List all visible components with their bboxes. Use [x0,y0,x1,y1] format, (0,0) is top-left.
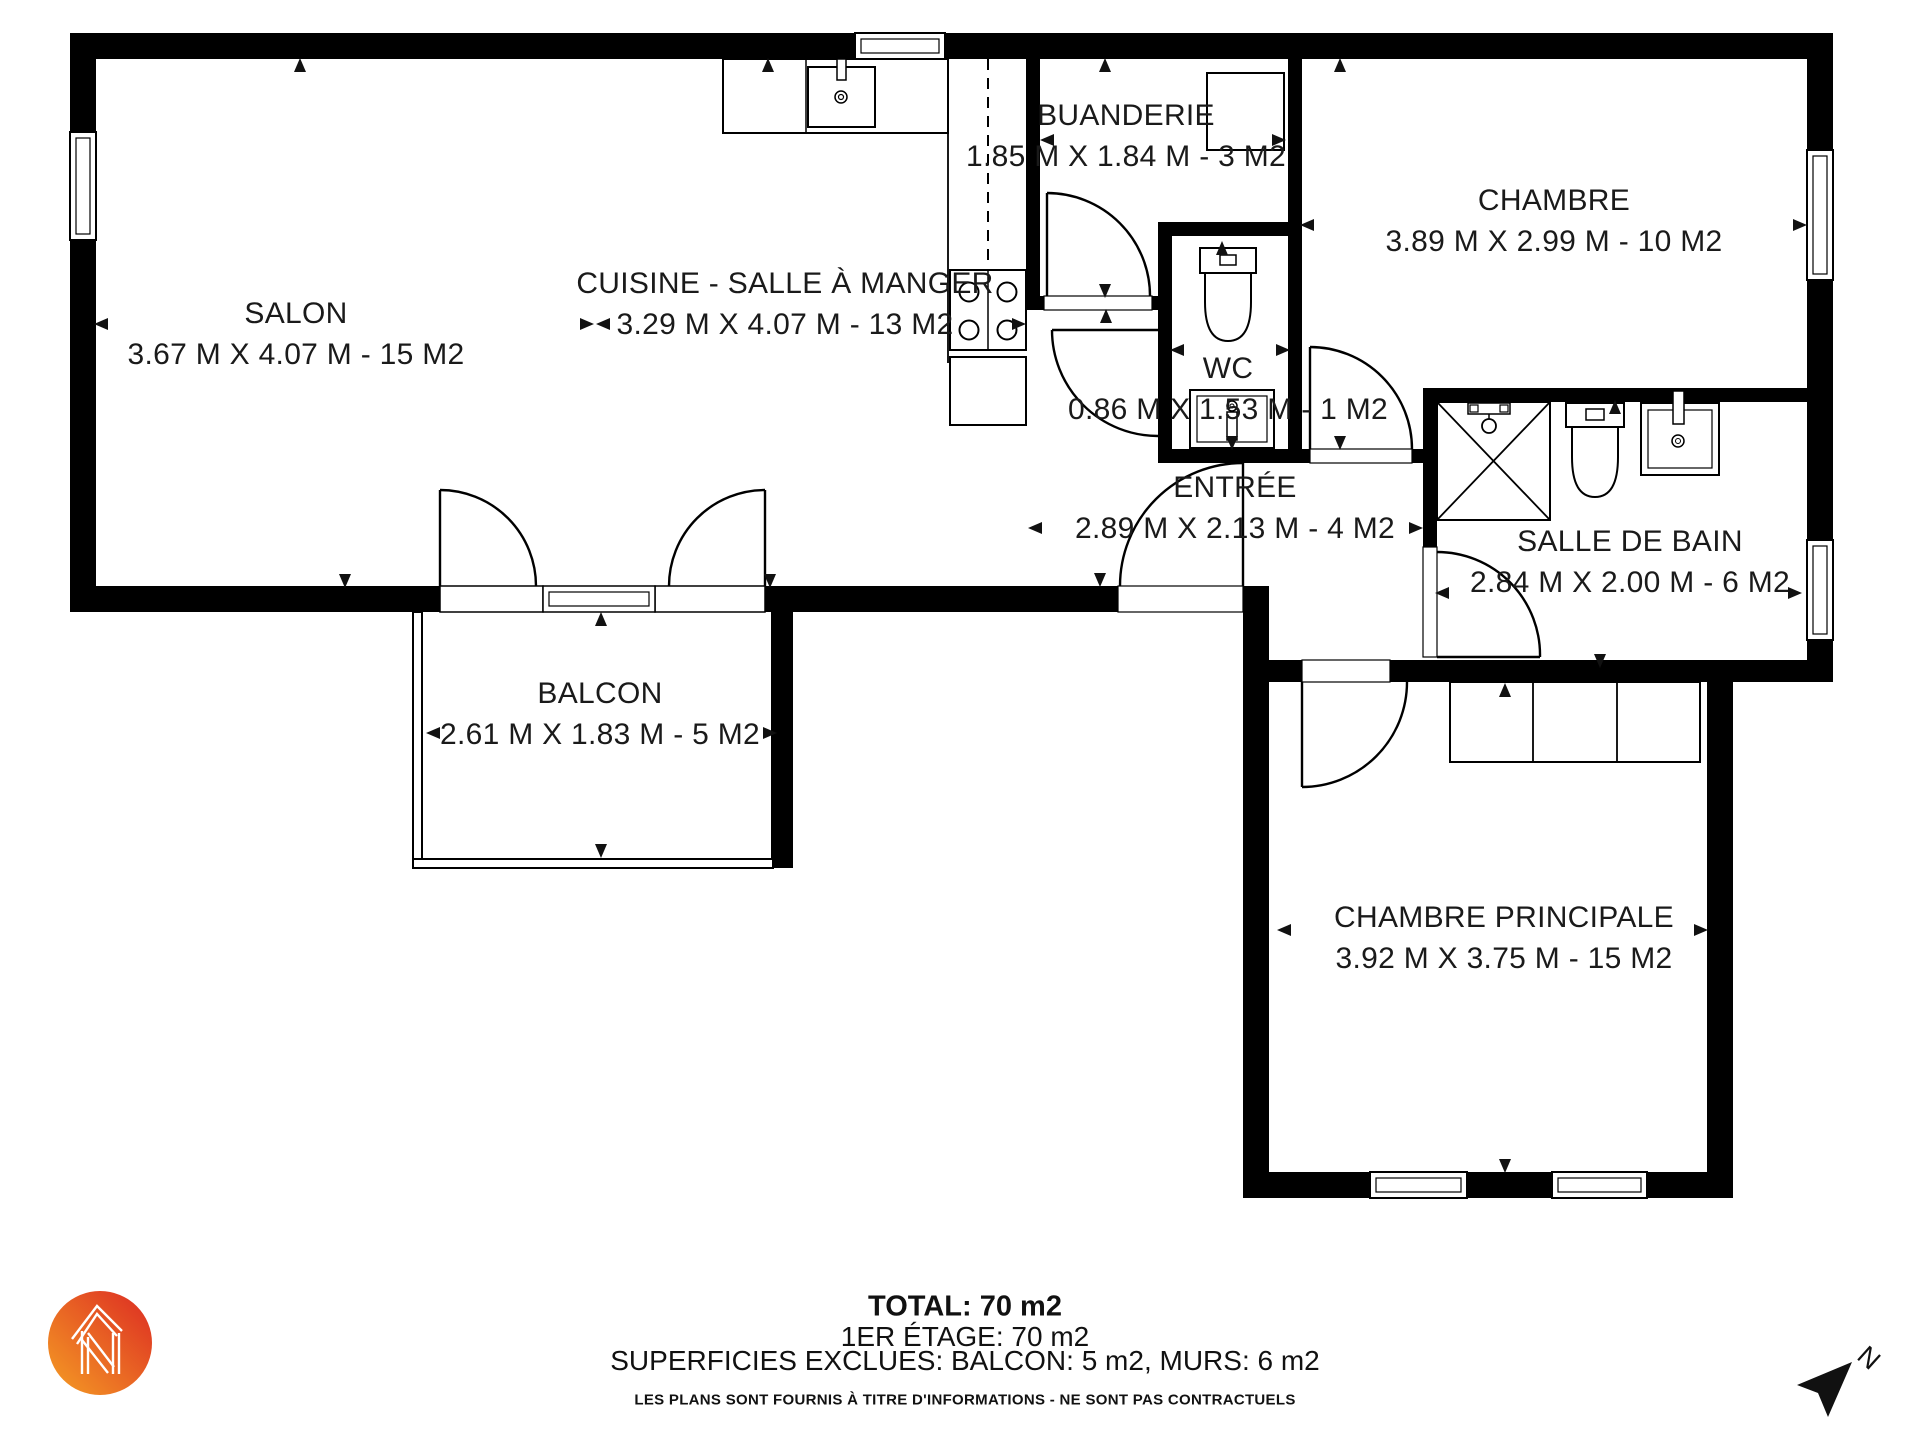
footer-total: TOTAL: 70 m2 [868,1291,1062,1324]
arrow-up-icon [294,58,306,72]
opening-front-door [1118,586,1243,612]
room-name: SALLE DE BAIN [1470,521,1790,562]
balcony-door-sill-right [655,586,765,612]
arrow-left-icon [426,727,440,739]
window-cuisine [855,33,945,59]
arrow-up-icon [1099,58,1111,72]
sink-icon-sdb [1641,391,1719,475]
arrow-down-icon [339,574,351,588]
room-label-chambre: CHAMBRE 3.89 M X 2.99 M - 10 M2 [1385,180,1722,262]
room-label-salle-de-bain: SALLE DE BAIN 2.84 M X 2.00 M - 6 M2 [1470,521,1790,603]
room-dims: 3.92 M X 3.75 M - 15 M2 [1334,938,1674,979]
window-chambre [1807,150,1833,280]
closet-icon [1450,682,1700,762]
wall-chambre-principale-right [1707,660,1733,1198]
room-label-chambre-principale: CHAMBRE PRINCIPALE 3.92 M X 3.75 M - 15 … [1334,897,1674,979]
wall-chambre-principale-left [1243,612,1269,1198]
arrow-right-icon [1694,924,1708,936]
opening-buanderie-door [1044,296,1152,310]
wall-chambre-bottom [1423,388,1810,402]
window-salon [70,132,96,240]
wall-bottom-salon-right [765,586,1118,612]
opening-sdb-door [1423,547,1437,657]
opening-chambre-door [1310,449,1412,463]
room-dims: 0.86 M X 1.53 M - 1 M2 [1068,389,1388,430]
room-dims: 2.89 M X 2.13 M - 4 M2 [1075,508,1395,549]
arrow-right-icon [1793,219,1807,231]
room-dims: 2.61 M X 1.83 M - 5 M2 [440,714,760,755]
agency-logo [48,1291,152,1395]
room-name: ENTRÉE [1075,467,1395,508]
arrow-down-icon [1334,436,1346,450]
arrow-up-icon [1100,309,1112,323]
room-dims: 3.67 M X 4.07 M - 15 M2 [127,334,464,375]
toilet-icon-sdb [1566,403,1624,497]
room-label-cuisine: CUISINE - SALLE À MANGER 3.29 M X 4.07 M… [576,263,993,345]
door-chambre-principale [1302,682,1407,787]
room-label-wc: WC 0.86 M X 1.53 M - 1 M2 [1068,348,1388,430]
shower-icon [1437,402,1550,520]
window-salle-de-bain [1807,540,1833,640]
wall-frontdoor-corner [1240,586,1269,612]
balcony-wall-left [413,612,422,868]
room-name: SALON [127,293,464,334]
arrow-left-icon [1300,219,1314,231]
toilet-icon-wc [1200,248,1256,341]
floor-plan-page: N SALON 3.67 M X 4.07 M - 15 M2 CUISINE … [0,0,1920,1440]
kitchen-faucet-icon [837,59,846,80]
door-balcony-left [440,490,536,586]
wall-chambre-principale-bottom [1247,1172,1733,1198]
room-name: BUANDERIE [966,95,1286,136]
compass-north-label: N [1852,1340,1887,1375]
arrow-down-icon [1094,573,1106,587]
wall-top [70,33,1833,59]
room-name: CHAMBRE [1385,180,1722,221]
arrow-up-icon [1334,58,1346,72]
wall-balcony-right [771,612,793,868]
balcony-wall-bottom [413,859,773,868]
arrow-right-icon [1409,522,1423,534]
room-name: BALCON [440,673,760,714]
arrow-left-icon [94,318,108,330]
arrow-right-icon [1788,587,1802,599]
room-name: WC [1068,348,1388,389]
room-name: CHAMBRE PRINCIPALE [1334,897,1674,938]
door-balcony-right [669,490,765,586]
arrow-up-icon [595,612,607,626]
room-dims: 3.29 M X 4.07 M - 13 M2 [576,304,993,345]
window-chambre-principale-1 [1370,1172,1467,1198]
room-dims: 1.85 M X 1.84 M - 3 M2 [966,136,1286,177]
wall-wc-top [1158,222,1302,236]
room-label-balcon: BALCON 2.61 M X 1.83 M - 5 M2 [440,673,760,755]
room-label-entree: ENTRÉE 2.89 M X 2.13 M - 4 M2 [1075,467,1395,549]
wall-bottom-salon-left [70,586,440,612]
compass: N [1797,1340,1886,1417]
arrow-down-icon [595,844,607,858]
arrow-down-icon [1499,1159,1511,1173]
window-balcony-center [543,586,655,612]
opening-chambre-principale-door [1302,660,1390,682]
room-name: CUISINE - SALLE À MANGER [576,263,993,304]
room-dims: 2.84 M X 2.00 M - 6 M2 [1470,562,1790,603]
room-label-buanderie: BUANDERIE 1.85 M X 1.84 M - 3 M2 [966,95,1286,177]
balcony-door-sill-left [440,586,543,612]
compass-arrow-icon [1797,1362,1852,1417]
window-chambre-principale-2 [1552,1172,1647,1198]
room-dims: 3.89 M X 2.99 M - 10 M2 [1385,221,1722,262]
footer-exclusions: SUPERFICIES EXCLUES: BALCON: 5 m2, MURS:… [610,1345,1320,1377]
arrow-left-icon [1277,924,1291,936]
kitchen-oven [950,357,1026,425]
room-label-salon: SALON 3.67 M X 4.07 M - 15 M2 [127,293,464,375]
sdb-fixtures [1437,391,1719,520]
door-buanderie [1047,193,1150,296]
footer-disclaimer: LES PLANS SONT FOURNIS À TITRE D'INFORMA… [634,1392,1295,1409]
wall-sdb-left [1423,388,1437,547]
arrow-left-icon [1028,522,1042,534]
